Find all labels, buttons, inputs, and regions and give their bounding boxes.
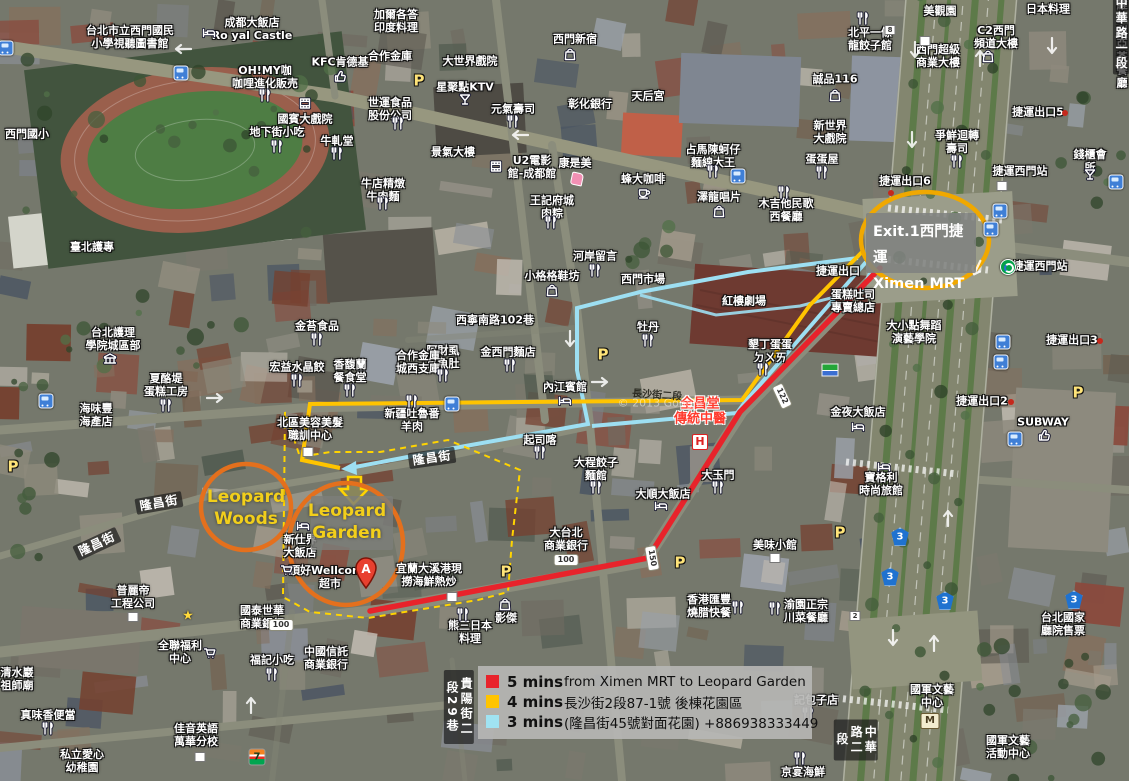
map-label-poi: 木吉他民歌 西餐廳 [759, 198, 814, 224]
arrow-icon [513, 126, 527, 148]
hotel-icon [877, 459, 891, 478]
movie-icon [489, 159, 503, 178]
map-label-poi: 夏酪堤 蛋糕工房 [144, 373, 188, 399]
arrow-icon [563, 330, 577, 352]
map-label-poi: 渝園正宗 川菜餐廳 [784, 599, 828, 625]
shield-icon: 150 [644, 545, 660, 571]
rdot-icon [1097, 338, 1103, 344]
mrt-exit-callout: Exit.1西門捷運 Ximen MRT [866, 213, 976, 273]
map-label-poi: 日本料理 [1026, 4, 1070, 17]
map-label-poi: 福記小吃 [250, 655, 294, 668]
marker-a-letter: A [361, 562, 371, 576]
thumb-icon [1037, 428, 1051, 447]
map-label-poi: 大程餃子 麵館 [574, 457, 618, 483]
martini-icon [458, 92, 472, 111]
wsq-icon [128, 612, 139, 622]
wsq-icon: 8 [885, 25, 896, 35]
arrow-icon [941, 509, 955, 531]
map-label-poi: 蛋糕吐司 專賣總店 [831, 289, 875, 315]
map-label-poi: 宜蘭大溪港現 撈海鮮熱炒 [396, 563, 462, 589]
restaurant-icon [533, 445, 547, 464]
legend-time: 5 mins [507, 673, 564, 691]
p-icon: P [598, 348, 609, 363]
arrow-icon [208, 389, 222, 411]
cart-icon [203, 646, 217, 665]
map-label-poi: 西門超級 商業大樓 [916, 44, 960, 70]
shield3-icon: 3 [1065, 591, 1084, 610]
h-icon: H [692, 434, 708, 450]
rdot-icon [1008, 399, 1014, 405]
map-label-street: 隆昌街 [134, 491, 183, 515]
map-label-poi: 河岸留言 [573, 251, 617, 264]
legend-row-yellow: 4 mins 長沙街2段87-1號 後棟花園區 [486, 692, 804, 711]
bag-icon [828, 88, 842, 107]
map-label-poi: 維多利亞 茶餐廳 [1117, 0, 1128, 90]
map-label-poi: 牡丹 [637, 322, 659, 335]
restaurant-icon [270, 139, 284, 158]
map-label-poi: 彰化銀行 [568, 99, 612, 112]
map-label-poi: 香馥蘭 餐食堂 [334, 359, 367, 385]
map-label-poi: 大世界戲院 [443, 56, 498, 69]
restaurant-icon [159, 398, 173, 417]
legend-swatch-red [486, 675, 499, 688]
map-label-poi: 內江賓館 [543, 382, 587, 395]
satellite-map[interactable]: 台北市立西門國民 小學視聽圖書館成都大飯店 Ro yal Castle加爾各答 … [0, 0, 1129, 781]
shield-icon: 100 [269, 619, 294, 631]
legend-desc: 長沙街2段87-1號 後棟花園區 [564, 692, 743, 712]
map-label-poi: 捷運出口5 [1012, 107, 1064, 120]
restaurant-icon [544, 215, 558, 234]
p-icon: P [1073, 386, 1084, 401]
map-label-poi: 國軍文藝 活動中心 [986, 735, 1030, 761]
leopard-woods-label: Leopard Woods [207, 486, 285, 530]
arrow-icon [1045, 37, 1059, 59]
arrow-icon [927, 634, 941, 656]
map-label-poi: 星聚點KTV [436, 82, 494, 95]
restaurant-icon [330, 146, 344, 165]
legend-desc: (隆昌街45號對面花園) +886938333449 [564, 712, 818, 732]
map-label-poi: 成都大飯店 Ro yal Castle [212, 17, 293, 43]
map-label-poi: 捷運出口 [816, 266, 860, 279]
p-icon: P [414, 74, 425, 89]
map-label-poi: C2西門 頻道大樓 [974, 25, 1018, 51]
map-label-poi: 世運食品 股份公司 [368, 97, 412, 123]
hotel-icon [558, 393, 572, 412]
map-label-street: 貴陽街二段29巷 [444, 670, 474, 744]
legend-time: 3 mins [507, 713, 564, 731]
arrow-icon [176, 40, 190, 62]
restaurant-icon [706, 164, 720, 183]
map-label-poi: 元氣壽司 [491, 104, 535, 117]
map-label-poi: 王記府城 肉粽 [530, 195, 574, 221]
map-label-poi: 美觀園 [924, 6, 957, 19]
map-label-poi: KFC肯德基 [311, 57, 368, 70]
bus-icon [39, 394, 54, 409]
map-label-poi: 捷運出口2 [956, 396, 1008, 409]
bag-icon [545, 283, 559, 302]
map-label-poi: 合作金庫 城西支庫 [396, 350, 440, 376]
wsq-icon [920, 36, 931, 46]
map-label-poi: 蜂大咖啡 [621, 174, 665, 187]
shield3-icon: 3 [881, 568, 900, 587]
map-label-poi: 台北國家 廳院售票 [1041, 612, 1085, 638]
map-label-poi: 佳音英語 萬華分校 [174, 723, 218, 749]
p-icon: P [835, 526, 846, 541]
map-label-poi: 小格格鞋坊 [525, 271, 580, 284]
bus-icon [984, 222, 999, 237]
map-label-poi: 金苔食品 [295, 321, 339, 334]
map-label-poi: 地下街小吃 [250, 127, 305, 140]
map-label-poi: 牛店精燉 牛肉麵 [361, 178, 405, 204]
map-label-poi: 起司喀 [524, 435, 557, 448]
map-label-poi: 新世界 大戲院 [814, 120, 847, 146]
bag-icon [981, 49, 995, 68]
restaurant-icon [391, 116, 405, 135]
restaurant-icon [950, 154, 964, 173]
restaurant-icon [777, 185, 791, 204]
map-label-poi: 北平一條 龍餃子館 [848, 27, 892, 53]
wsq-icon [303, 447, 314, 457]
restaurant-icon [376, 196, 390, 215]
map-label-poi: 捷運出口6 [879, 176, 931, 189]
map-label-poi: 熊三日本 料理 [448, 620, 492, 646]
map-labels-layer: 台北市立西門國民 小學視聽圖書館成都大飯店 Ro yal Castle加爾各答 … [0, 0, 1129, 781]
rdot-icon [1062, 110, 1068, 116]
map-label-watermark: © 2013 Google [618, 398, 703, 411]
restaurant-icon [405, 394, 419, 413]
restaurant-icon [506, 114, 520, 133]
bus-icon [0, 41, 14, 56]
school-icon [103, 352, 117, 371]
martini-icon [1083, 167, 1097, 186]
bus-icon [993, 204, 1008, 219]
bus-icon [996, 335, 1011, 350]
map-label-poi: 天后宮 [632, 91, 665, 104]
marker-a-pin[interactable]: A [354, 557, 378, 589]
restaurant-icon [290, 373, 304, 392]
arrow-icon [593, 373, 607, 395]
map-label-poi: 捷運西門站 [1013, 261, 1068, 274]
restaurant-icon [456, 607, 470, 626]
restaurant-icon [815, 165, 829, 184]
map-label-poi: 金夜大飯店 [831, 407, 886, 420]
map-label-poi: 加爾各答 印度料理 [374, 9, 418, 35]
map-label-poi: OH!MY咖 咖哩進化販売 [232, 65, 298, 91]
map-label-poi: 私立愛心 幼稚園 [60, 749, 104, 775]
leopard-garden-label: Leopard Garden [308, 500, 386, 544]
legend-time: 4 mins [507, 693, 564, 711]
map-label-poi: 誠品116 [813, 74, 858, 87]
bag-icon [563, 47, 577, 66]
wsq-icon [770, 553, 781, 563]
map-label-poi: 西門新宿 [553, 34, 597, 47]
bus-icon [174, 66, 189, 81]
map-label-poi: SUBWAY [1017, 417, 1069, 430]
hotel-icon [851, 419, 865, 438]
map-label-poi: 蛋蛋屋 [806, 154, 839, 167]
map-label-poi: 大小點舞蹈 演藝學院 [887, 320, 942, 346]
m-icon: M [921, 713, 940, 729]
map-label-poi: 全昌堂 傳統中醫 [674, 397, 726, 428]
restaurant-icon [589, 480, 603, 499]
map-label-poi: 台北護理 學院城區部 [86, 327, 141, 353]
p-icon: P [675, 556, 686, 571]
map-label-poi: 台北市立西門國民 小學視聽圖書館 [86, 25, 174, 51]
map-label-poi: 紅樓劇場 [722, 296, 766, 309]
movie-icon [298, 96, 312, 115]
map-label-poi: 占馬陳蚵仔 麵線大王 [686, 144, 741, 170]
map-label-poi: 京宴海鮮 [781, 767, 825, 780]
map-label-poi: 捷運出口3 [1046, 335, 1098, 348]
map-label-poi: 牛軋堂 [321, 136, 354, 149]
map-label-poi: 西門市場 [621, 274, 665, 287]
map-label-poi: 普麗帝 工程公司 [111, 585, 155, 611]
map-label-poi: 爭鮮迴轉 壽司 [935, 130, 979, 156]
restaurant-icon [588, 263, 602, 282]
shield-icon: 100 [554, 554, 579, 566]
map-label-poi: 宏益水晶餃 [270, 362, 325, 375]
map-label-poi: 全聯福利 中心 [158, 640, 202, 666]
restaurant-icon [793, 751, 807, 770]
map-label-poi: 臺北護專 [70, 242, 114, 255]
map-label-poi: 北區美容美髮 職訓中心 [277, 417, 343, 443]
restaurant-icon [768, 601, 782, 620]
restaurant-icon [343, 383, 357, 402]
restaurant-icon [756, 362, 770, 381]
map-label-poi: U2電影 館-成都館 [508, 155, 557, 181]
map-label-street: 隆昌街 [72, 527, 121, 562]
bus-icon [1008, 432, 1023, 447]
map-label-poi: 金西門麵店 [481, 347, 536, 360]
map-label-poi: 影傑 [495, 613, 517, 626]
restaurant-icon [731, 600, 745, 619]
map-label-poi: 清水巖 祖師廟 [1, 667, 34, 693]
hotel-icon [202, 25, 216, 44]
shield-icon: 122 [771, 382, 792, 409]
map-label-poi: 錢櫃會所 [1071, 149, 1110, 175]
legend-swatch-blue [486, 715, 499, 728]
map-label-poi: 海味豐 海產店 [80, 403, 113, 429]
arrow-icon [973, 49, 987, 71]
map-label-poi: 新疆吐魯番 羊肉 [385, 408, 440, 434]
map-label-poi: 捷運西門站 [993, 166, 1048, 179]
map-label-poi: 美味小館 [753, 540, 797, 553]
map-label-poi: 阿財虱 目魚肚 [427, 345, 460, 371]
bus-icon [1109, 175, 1124, 190]
map-label-poi: 國軍文藝 中心 [910, 684, 954, 710]
restaurant-icon [711, 480, 725, 499]
wsq-icon: 2 [850, 611, 861, 621]
map-label-poi: 西寧南路102巷 [456, 315, 534, 328]
restaurant-icon [265, 667, 279, 686]
wsq-icon [997, 181, 1008, 191]
map-label-poi: 真味香便當 [21, 710, 76, 723]
arrow-icon [886, 629, 900, 651]
shield3-icon: 3 [936, 592, 955, 611]
legend-row-blue: 3 mins (隆昌街45號對面花園) +886938333449 [486, 712, 804, 731]
bus-icon [731, 169, 746, 184]
map-label-poi: 中國信託 商業銀行 [304, 646, 348, 672]
map-label-poi: 國賓大戲院 [278, 114, 333, 127]
bus-icon [445, 397, 460, 412]
map-label-poi: 大台北 商業銀行 [544, 527, 588, 553]
thumb-icon [333, 69, 347, 88]
route-legend: 5 mins from Ximen MRT to Leopard Garden … [478, 666, 812, 739]
seven-icon: 7 [249, 749, 266, 766]
legend-swatch-yellow [486, 695, 499, 708]
arrow-icon [905, 131, 919, 153]
p-icon: P [8, 460, 19, 475]
map-label-poi: 大玉門 [702, 470, 735, 483]
map-label-poi: 寶格利 時尚旅館 [859, 472, 903, 498]
restaurant-icon [856, 11, 870, 30]
restaurant-icon [310, 332, 324, 351]
cart-icon [280, 563, 294, 582]
shield3-icon: 3 [891, 528, 910, 547]
flag-icon [822, 364, 839, 377]
map-label-poi: 香港匯豐 燒腊快餐 [687, 594, 731, 620]
map-label-roadname: 長沙街二段 [632, 388, 683, 403]
wsq-icon [447, 592, 458, 602]
cafe-icon [637, 185, 651, 204]
legend-desc: from Ximen MRT to Leopard Garden [564, 674, 806, 690]
p-icon: P [501, 565, 512, 580]
restaurant-icon [641, 333, 655, 352]
map-label-poi: 合作金庫 [368, 51, 412, 64]
map-label-poi: 康是美 [559, 158, 592, 171]
map-label-street: 中華路二段 [834, 720, 878, 761]
mrt-icon [1000, 259, 1016, 275]
restaurant-icon [503, 358, 517, 377]
restaurant-icon [41, 721, 55, 740]
bag-icon [712, 204, 726, 223]
legend-row-red: 5 mins from Ximen MRT to Leopard Garden [486, 672, 804, 691]
map-label-poi: 大順大飯店 [636, 489, 691, 502]
map-label-poi: 澤龍唱片 [697, 192, 741, 205]
arrow-icon [244, 696, 258, 718]
hotel-icon [654, 498, 668, 517]
bag-icon [498, 597, 512, 616]
restaurant-icon [258, 88, 272, 107]
rdot-icon [888, 190, 894, 196]
map-label-poi: 墾丁蛋蛋 ㄉㄨㄞ [748, 339, 792, 365]
map-label-poi: 國泰世華 商業銀行 [240, 605, 284, 631]
bus-icon [994, 355, 1009, 370]
wsq-icon [195, 752, 206, 762]
map-label-street: 中華路一段 [1113, 0, 1129, 75]
restaurant-icon [436, 368, 450, 387]
star-icon: ★ [182, 610, 194, 623]
cosmetic-icon [571, 173, 583, 186]
map-label-poi: 景氣大樓 [431, 147, 475, 160]
map-label-poi: 西門國小 [5, 129, 49, 142]
arrow-icon [908, 41, 922, 63]
map-label-street: 隆昌街 [408, 447, 457, 470]
